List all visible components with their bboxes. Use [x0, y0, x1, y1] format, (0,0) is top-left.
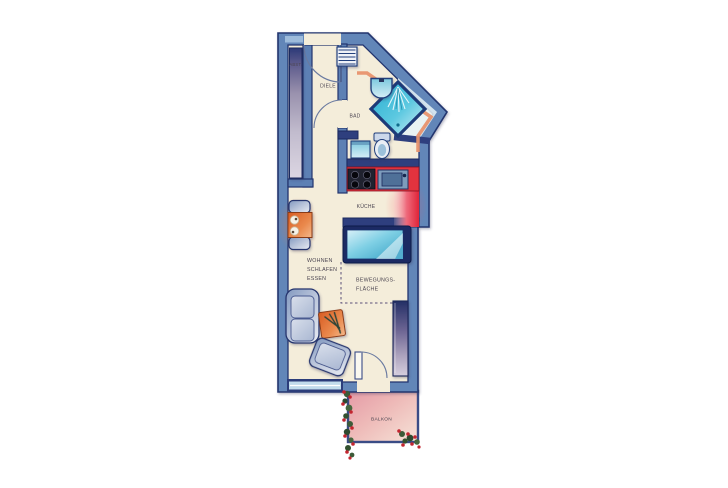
- storage-end-wall: [288, 179, 313, 187]
- wardrobe: [393, 301, 408, 376]
- toilet-bowl-inner: [378, 144, 386, 156]
- plate: [290, 216, 298, 224]
- entrance-opening: [304, 34, 341, 46]
- side-table-top: [318, 309, 345, 338]
- kitchen-counter-side: [394, 191, 419, 227]
- movement-label-line2: FLÄCHE: [356, 286, 379, 293]
- washing-machine-panel: [351, 141, 370, 145]
- balcony-door-opening: [357, 379, 390, 392]
- living-label-line3: ESSEN: [307, 276, 326, 282]
- kitchen-sink: [378, 170, 408, 189]
- side-table: [318, 309, 345, 338]
- floor-plan: ABST. DIELE BAD KÜCHE WOHNEN SCHLAFEN ES…: [0, 0, 728, 488]
- shower-enclosure-wall: [394, 137, 430, 141]
- kitchen-label: KÜCHE: [357, 203, 376, 210]
- storage-label: ABST.: [289, 62, 302, 67]
- sofa: [286, 289, 319, 343]
- bath-kitchen-divider: [347, 159, 419, 167]
- dining-chair-bottom: [289, 237, 310, 250]
- washing-machine: [351, 141, 370, 158]
- dining-chair-top: [289, 201, 310, 214]
- dining-set: [288, 201, 312, 250]
- bath-door-opening: [338, 100, 347, 128]
- toilet: [374, 133, 390, 159]
- top-wall-window: [285, 36, 303, 43]
- hall-shelf: [337, 47, 357, 66]
- storage-cabinet: [290, 48, 303, 178]
- living-label-line2: SCHLAFEN: [307, 267, 337, 273]
- washbasin-tap: [379, 79, 384, 83]
- kitchen-sink-basin: [382, 173, 402, 186]
- bed: [343, 226, 411, 263]
- washbasin: [371, 79, 392, 99]
- kitchen-sink-tap: [403, 174, 407, 178]
- stove: [348, 169, 375, 189]
- balcony-door-leaf: [355, 352, 362, 379]
- hall-label: DIELE: [320, 84, 336, 90]
- plate-item: [295, 218, 298, 221]
- living-label-line1: WOHNEN: [307, 258, 333, 264]
- movement-label-line1: BEWEGUNGS-: [356, 278, 395, 284]
- sofa-cushion: [291, 296, 314, 318]
- floor-plan-canvas: ABST. DIELE BAD KÜCHE WOHNEN SCHLAFEN ES…: [0, 0, 728, 488]
- plate: [290, 227, 298, 235]
- bath-niche-wall: [338, 131, 358, 139]
- bath-label: BAD: [349, 114, 360, 120]
- sofa-cushion: [291, 319, 314, 341]
- plate-item: [292, 231, 295, 234]
- balcony-label: BALKON: [371, 417, 392, 423]
- shower-drain: [396, 123, 399, 126]
